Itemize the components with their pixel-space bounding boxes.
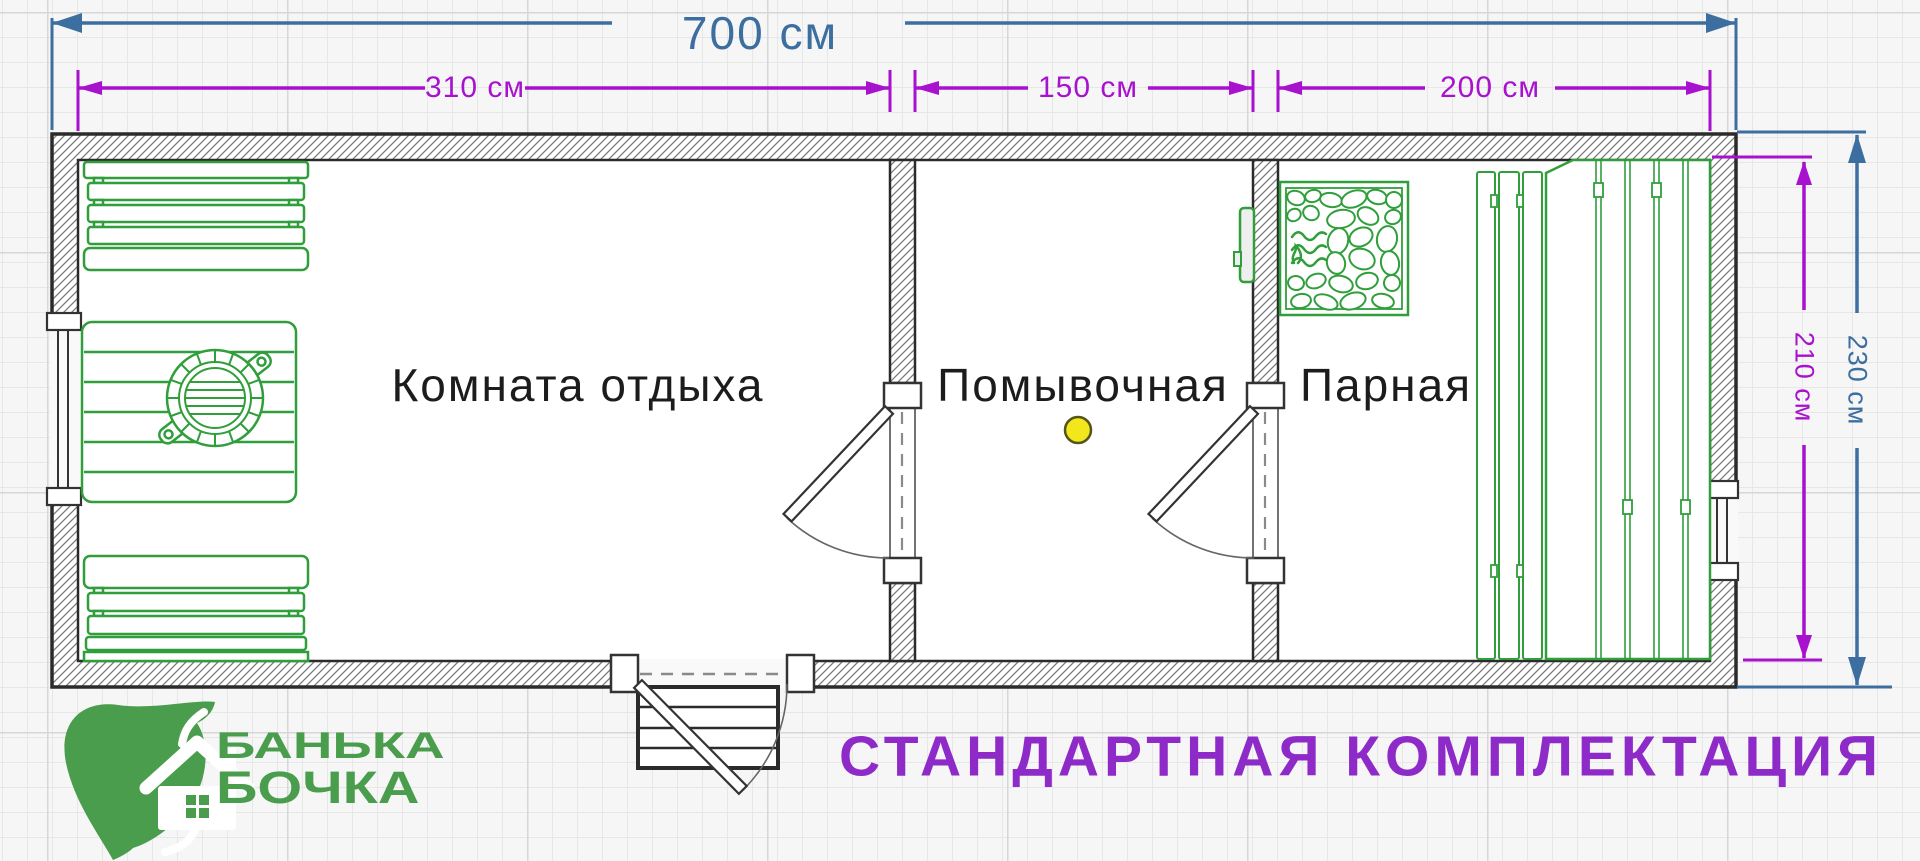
drain-icon (1065, 417, 1091, 443)
dim-room1-width-label: 310 см (425, 73, 525, 103)
logo-text-line1: БАНЬКА (216, 727, 445, 764)
floor-plan-page: 700 см 310 см 150 см 200 см 210 см 230 с… (0, 0, 1920, 861)
dim-total-width-label: 700 см (682, 10, 838, 56)
caption-standard-configuration: СТАНДАРТНАЯ КОМПЛЕКТАЦИЯ (839, 729, 1883, 786)
window-left-icon (47, 313, 81, 505)
dim-room2-width-label: 150 см (1038, 73, 1138, 103)
room-label-washing-room: Помывочная (937, 362, 1229, 408)
logo-text-line2: БОЧКА (216, 765, 419, 810)
dim-room3-width-label: 200 см (1440, 73, 1540, 103)
sauna-bench-icon (1477, 160, 1710, 659)
stove-door-icon (1240, 208, 1254, 282)
room-label-steam-room: Парная (1300, 362, 1472, 408)
dim-inner-height-label: 210 см (1791, 332, 1818, 423)
room-label-rest-room: Комната отдыха (392, 362, 765, 408)
entrance-door-icon (611, 655, 814, 794)
bench-bottom-icon (84, 556, 308, 661)
bench-top-icon (84, 162, 308, 270)
dim-overall-height-label: 230 см (1844, 335, 1871, 426)
